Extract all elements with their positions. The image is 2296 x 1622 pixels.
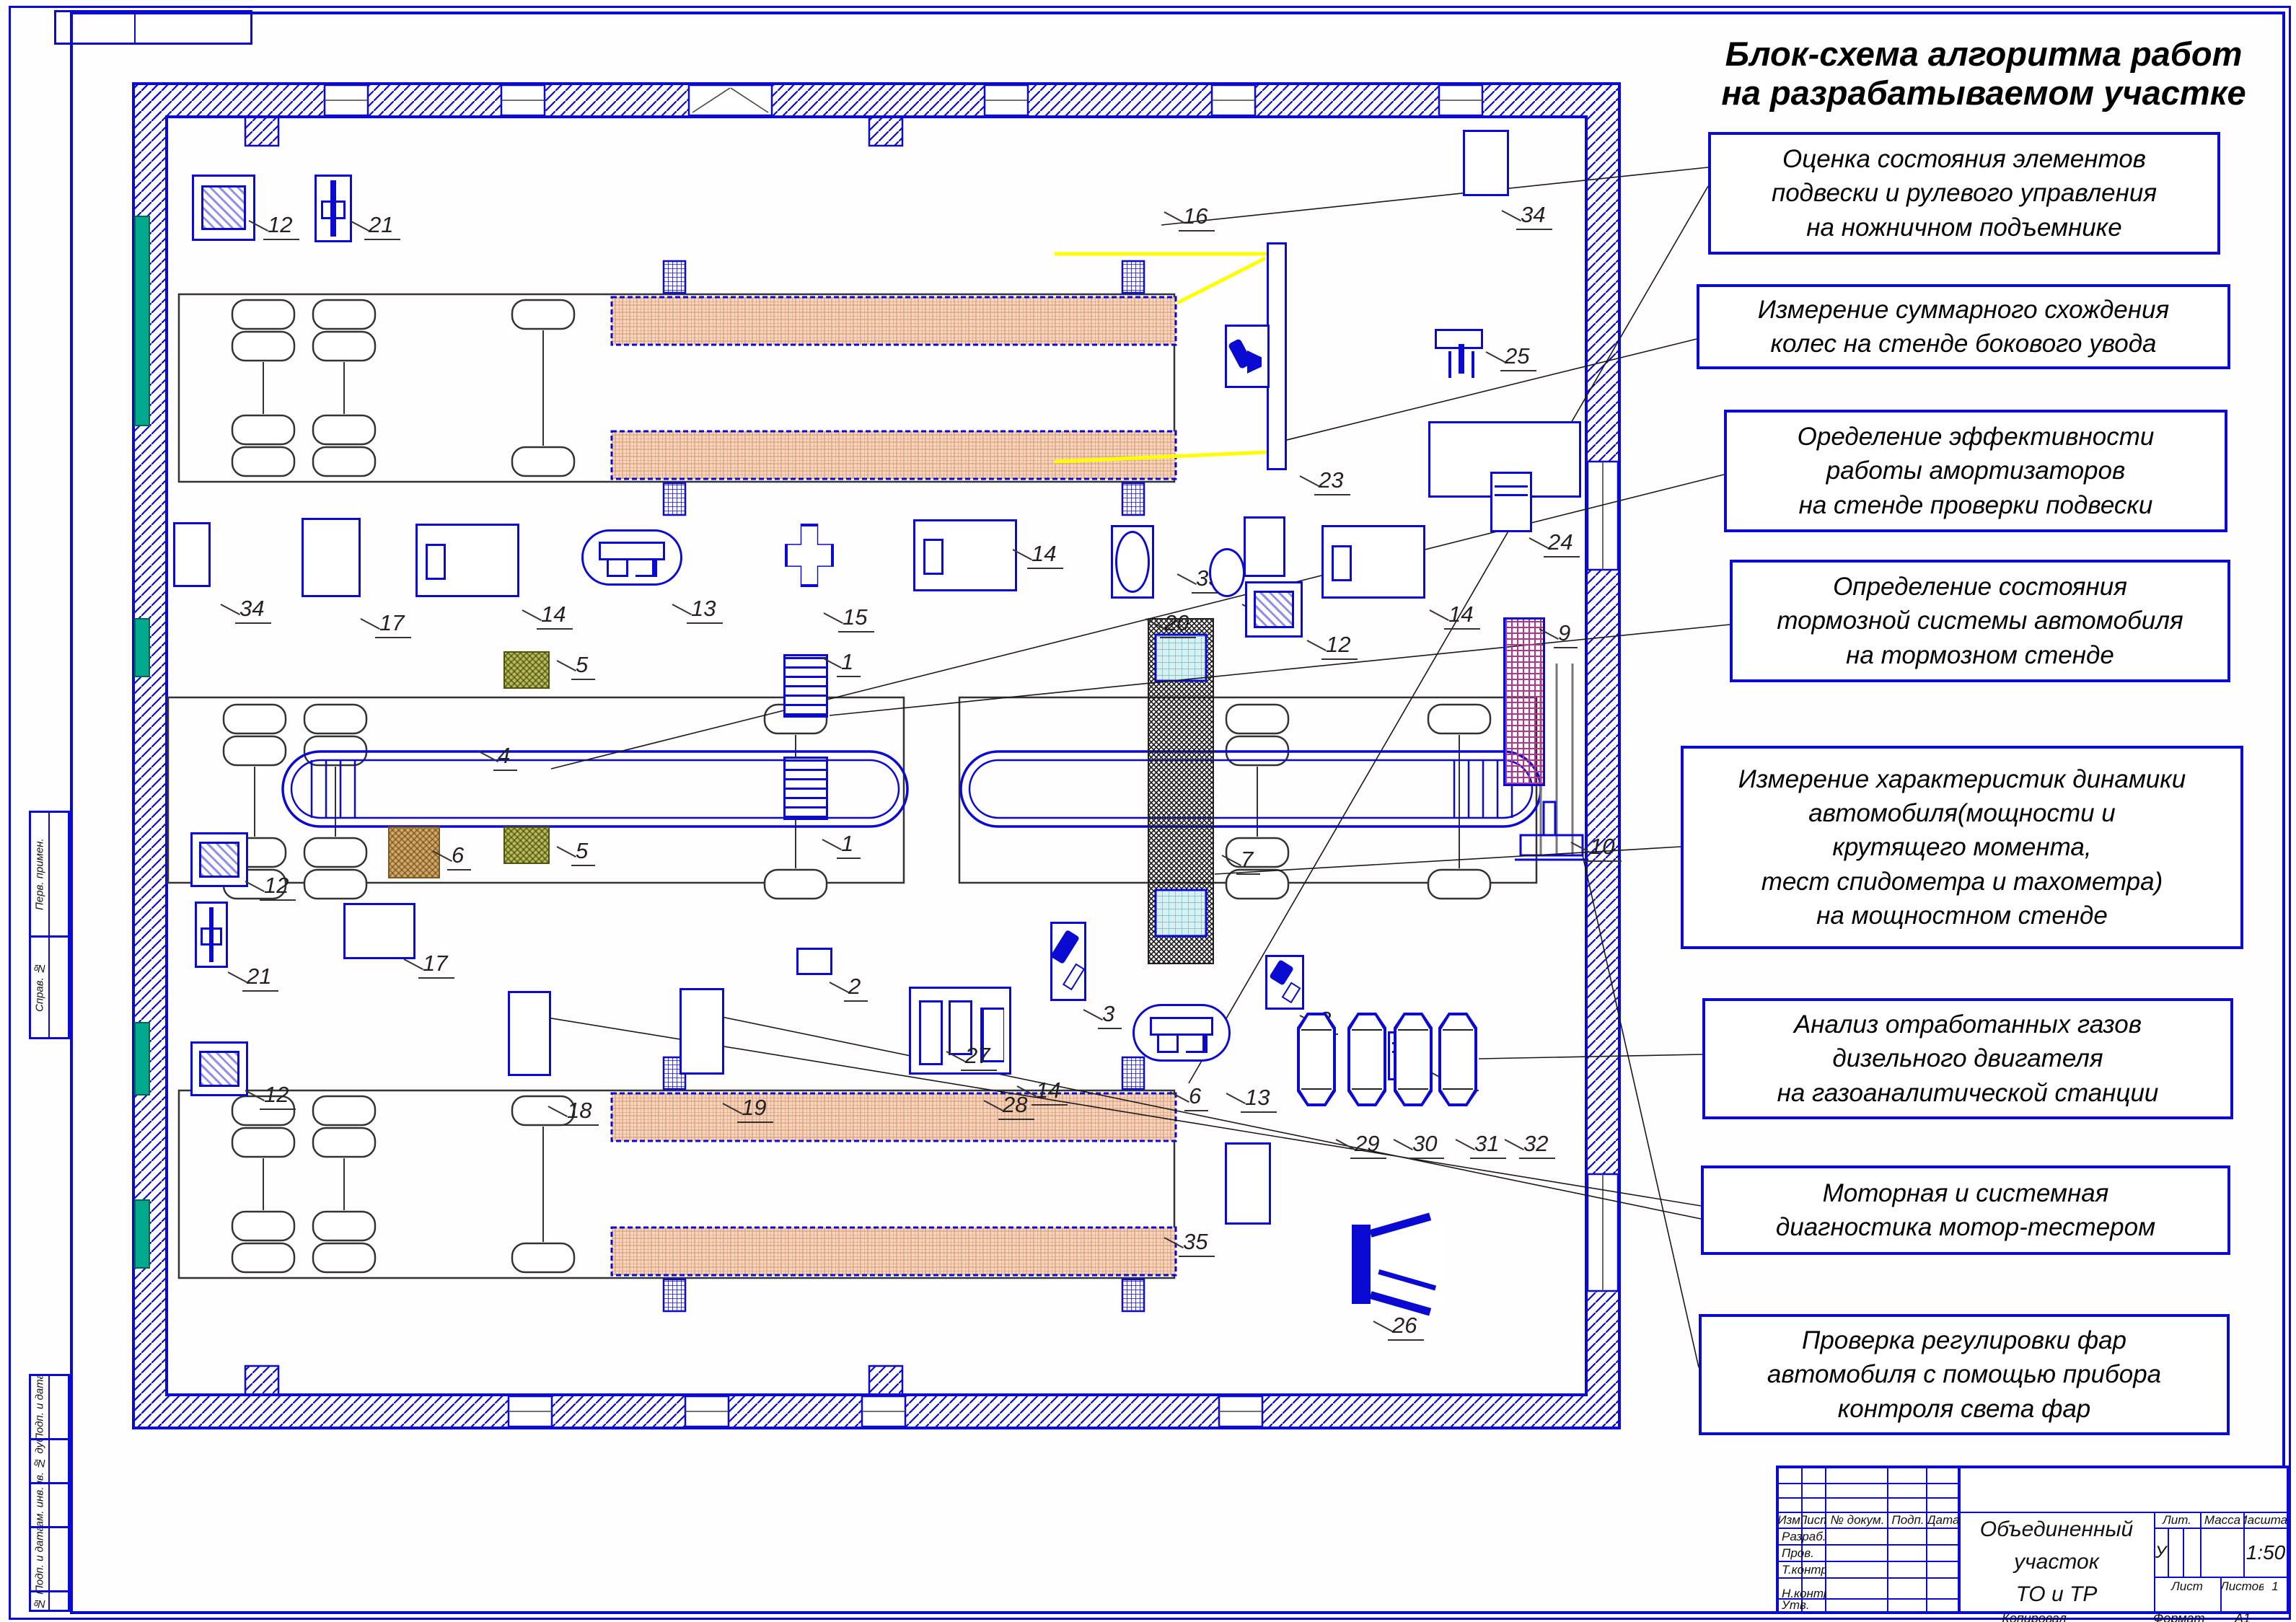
document-title: Объединенный участок ТО и ТР (1959, 1512, 2154, 1611)
equipment-3 (1050, 922, 1086, 1001)
equipment-13 (581, 529, 682, 586)
equipment-8 (1265, 955, 1304, 1010)
equipment-25 (1433, 320, 1489, 374)
equipment-12 (190, 832, 248, 887)
callout-14: 14 (1444, 603, 1480, 630)
tb-scale: 1:50 (2243, 1529, 2287, 1577)
equipment-13 (1132, 1004, 1231, 1062)
tb-listov-val: 1 (2264, 1577, 2287, 1611)
callout-10: 10 (1585, 835, 1622, 862)
callout-18: 18 (563, 1099, 599, 1126)
callout-1: 1 (837, 651, 861, 677)
equipment-19 (679, 988, 724, 1075)
equipment-15 (785, 524, 834, 587)
callout-30: 30 (1408, 1132, 1444, 1159)
equipment-21 (195, 902, 228, 968)
callout-34: 34 (1516, 203, 1552, 230)
tb-listov: Листов (2220, 1577, 2264, 1611)
callout-12: 12 (260, 1083, 296, 1110)
callout-27: 27 (961, 1044, 997, 1071)
equipment-14 (415, 524, 519, 597)
equipment-34 (1463, 130, 1509, 196)
callout-14: 14 (537, 603, 573, 630)
callout-31: 31 (1470, 1132, 1506, 1159)
callout-34: 34 (235, 597, 271, 624)
callout-14: 14 (1032, 1079, 1068, 1106)
callout-5: 5 (571, 839, 595, 866)
callout-21: 21 (364, 213, 400, 240)
equipment-31 (1394, 1013, 1433, 1106)
format-value: А1 (2235, 1611, 2251, 1622)
tb-nkontr: Н.контр. (1779, 1589, 1826, 1600)
callout-16: 16 (1179, 205, 1215, 232)
equipment-34 (173, 522, 211, 587)
equipment-2 (796, 948, 832, 975)
callout-1: 1 (837, 832, 861, 859)
equipment-layer: 1221163425233335171413151420221424912345… (0, 0, 2296, 1622)
equipment-5 (503, 827, 550, 864)
tb-lit: Лит. (2154, 1512, 2200, 1529)
callout-6: 6 (447, 844, 471, 870)
callout-25: 25 (1500, 345, 1536, 371)
tb-izm: Изм. (1779, 1512, 1803, 1529)
tb-list: Лист (1803, 1512, 1826, 1529)
callout-13: 13 (1241, 1086, 1277, 1113)
callout-12: 12 (260, 874, 296, 901)
equipment-26 (1352, 1225, 1443, 1304)
callout-32: 32 (1519, 1132, 1555, 1159)
format-label: Формат (2153, 1611, 2204, 1622)
equipment-17 (302, 518, 361, 597)
tb-prov: Пров. (1779, 1546, 1826, 1562)
callout-24: 24 (1544, 531, 1580, 557)
callout-17: 17 (418, 952, 454, 979)
equipment-9 (1503, 617, 1545, 786)
callout-17: 17 (375, 612, 411, 638)
callout-2: 2 (844, 975, 868, 1002)
tb-lit-val: У (2154, 1529, 2169, 1577)
tb-ndok: № докум. (1826, 1512, 1888, 1529)
tb-podp: Подп. (1888, 1512, 1927, 1529)
tb-list2: Лист (2154, 1577, 2220, 1611)
equipment-12 (190, 1041, 248, 1096)
callout-7: 7 (1236, 848, 1260, 875)
callout-35: 35 (1179, 1230, 1215, 1257)
callout-9: 9 (1554, 622, 1578, 648)
callout-15: 15 (838, 606, 874, 633)
equipment-5 (503, 651, 550, 689)
callout-23: 23 (1314, 469, 1350, 495)
tb-razrab: Разраб. (1779, 1529, 1826, 1546)
tb-massa: Масса (2200, 1512, 2243, 1529)
tb-utv: Утв. (1779, 1600, 1826, 1611)
equipment-24 (1490, 472, 1532, 532)
callout-19: 19 (737, 1096, 773, 1123)
callout-5: 5 (571, 653, 595, 680)
equipment-30 (1347, 1013, 1386, 1106)
equipment-14 (1321, 525, 1425, 599)
equipment-6 (388, 827, 440, 878)
equipment-29 (1297, 1013, 1336, 1106)
equipment-12 (192, 175, 255, 241)
equipment-21 (315, 175, 352, 242)
callout-21: 21 (242, 965, 278, 992)
equipment-23 (1267, 242, 1287, 470)
callout-29: 29 (1350, 1132, 1386, 1159)
callout-14: 14 (1027, 542, 1063, 569)
equipment-22 (1209, 548, 1245, 597)
callout-12: 12 (263, 213, 299, 240)
drawing-sheet: Перв. примен. Справ. № Подп. и дата Инв.… (0, 0, 2296, 1622)
callout-13: 13 (687, 597, 723, 624)
tb-tkontr: Т.контр. (1779, 1562, 1826, 1579)
equipment-20 (1111, 525, 1154, 599)
equipment-1 (783, 757, 828, 820)
equipment-1 (783, 654, 828, 718)
equipment-17 (343, 903, 415, 959)
callout-20: 20 (1160, 612, 1196, 638)
tb-data: Дата (1927, 1512, 1959, 1529)
callout-3: 3 (1098, 1002, 1122, 1029)
callout-12: 12 (1321, 633, 1358, 660)
equipment-35 (1244, 516, 1285, 577)
callout-26: 26 (1388, 1314, 1424, 1341)
tb-masshtab: Масштаб (2243, 1512, 2287, 1529)
callout-28: 28 (998, 1093, 1034, 1120)
equipment-14 (913, 519, 1017, 591)
callout-4: 4 (493, 744, 517, 771)
equipment-35 (1225, 1142, 1271, 1225)
callout-6: 6 (1184, 1085, 1208, 1111)
equipment-part (1225, 325, 1270, 388)
equipment-18 (508, 991, 551, 1076)
equipment-12 (1245, 581, 1303, 638)
title-block: Изм. Лист № докум. Подп. Дата Разраб. Пр… (1776, 1465, 2290, 1614)
kopiroval-label: Копировал (1962, 1611, 2106, 1622)
equipment-32 (1438, 1013, 1477, 1106)
